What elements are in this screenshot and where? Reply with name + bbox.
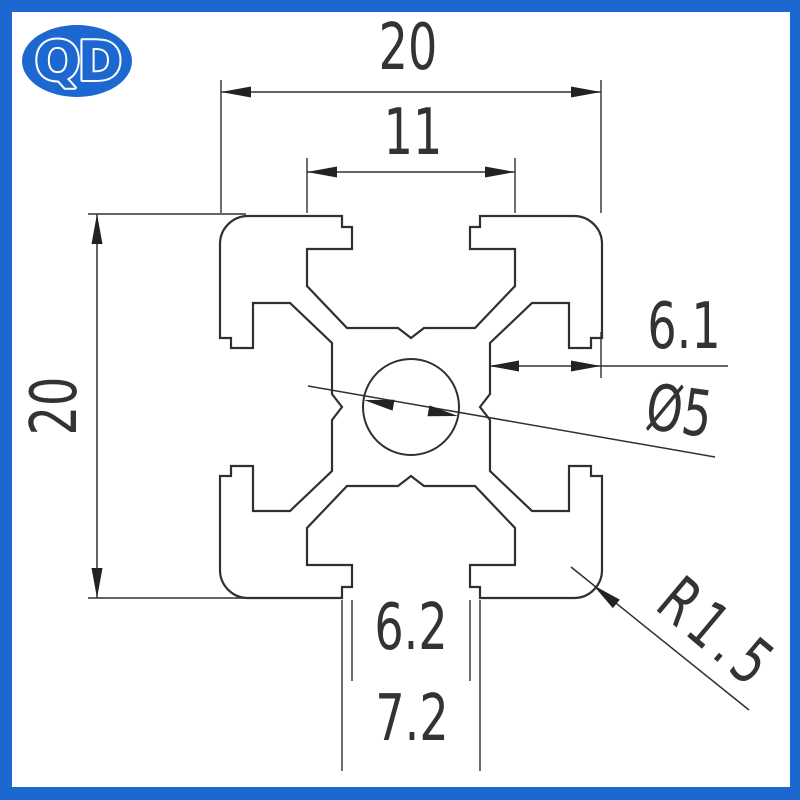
dim-label-slot-opening: 6.2 <box>374 596 447 660</box>
dim-label-slot-depth: 6.1 <box>647 295 720 359</box>
dim-label-hole-diameter: Ø5 <box>642 376 716 449</box>
dim-label-cavity-width: 11 <box>384 101 443 165</box>
dimension-arrowhead <box>92 568 103 598</box>
dimension-arrowhead <box>571 361 601 372</box>
dimension-arrowhead <box>485 167 515 178</box>
dim-label-top-width: 20 <box>379 16 438 80</box>
dimension-arrowhead <box>92 214 103 244</box>
logo-text: QD <box>35 30 120 93</box>
logo-qd: QD <box>16 20 140 104</box>
dimension-arrowhead <box>428 405 459 421</box>
center-hole <box>363 359 459 455</box>
dim-label-left-height: 20 <box>23 377 87 436</box>
dimension-arrowhead <box>571 87 601 98</box>
dimension-arrowhead <box>489 361 519 372</box>
dimension-arrowhead <box>307 167 337 178</box>
dimension-arrowhead <box>221 87 251 98</box>
extrusion-profile-outline <box>220 216 602 598</box>
drawing-canvas: QD 20 11 20 6.1 Ø5 6.2 7.2 R1.5 <box>0 0 800 800</box>
dim-label-slot-face-width: 7.2 <box>375 687 448 751</box>
